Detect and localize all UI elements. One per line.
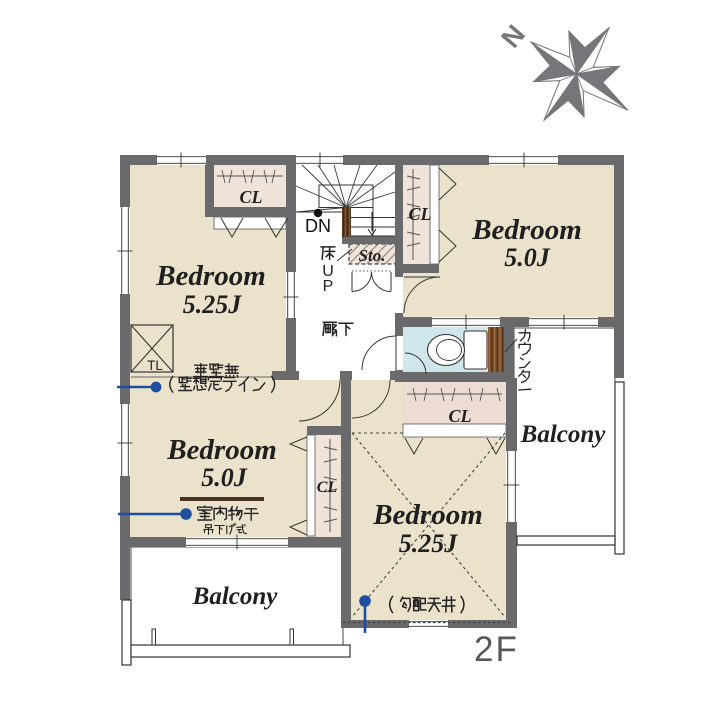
svg-text:DN: DN	[305, 216, 331, 236]
svg-text:2F: 2F	[474, 630, 519, 669]
svg-text:5.0J: 5.0J	[504, 243, 551, 272]
svg-text:Balcony: Balcony	[192, 583, 279, 610]
svg-text:P: P	[323, 278, 334, 295]
svg-text:CL: CL	[448, 406, 471, 426]
svg-text:Bedroom: Bedroom	[372, 499, 483, 531]
svg-text:Balcony: Balcony	[520, 421, 607, 448]
svg-text:N: N	[495, 19, 531, 53]
svg-text:CL: CL	[408, 204, 431, 224]
svg-text:TL: TL	[147, 358, 163, 373]
svg-text:Sto.: Sto.	[359, 246, 386, 265]
svg-text:CL: CL	[317, 479, 338, 496]
svg-text:5.25J: 5.25J	[399, 529, 459, 558]
svg-text:Bedroom: Bedroom	[155, 260, 266, 292]
svg-text:Bedroom: Bedroom	[166, 434, 277, 466]
svg-text:5.25J: 5.25J	[183, 290, 243, 319]
svg-text:CL: CL	[239, 187, 262, 207]
svg-text:Bedroom: Bedroom	[471, 214, 582, 246]
svg-text:5.0J: 5.0J	[201, 463, 248, 492]
